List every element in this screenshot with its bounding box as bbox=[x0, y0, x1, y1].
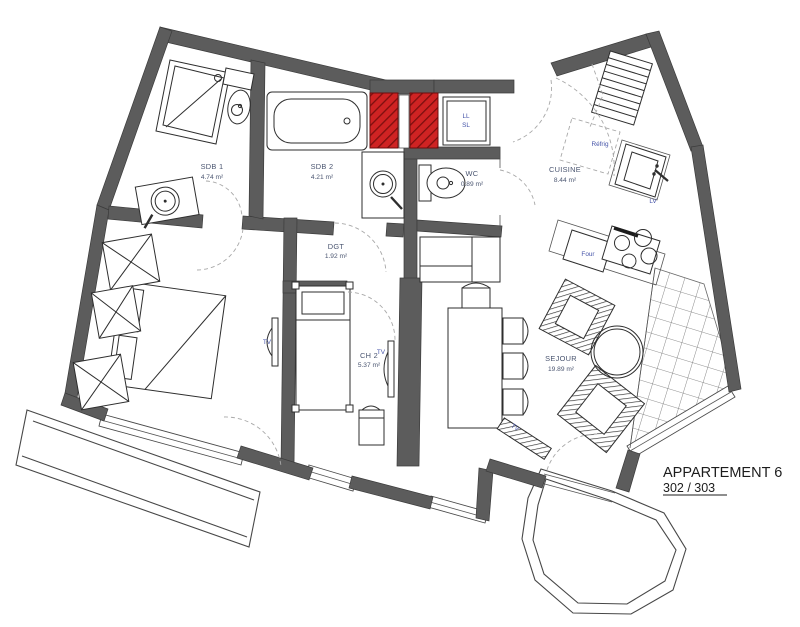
bathtub-icon bbox=[267, 92, 367, 150]
label-sejour-name: SEJOUR bbox=[545, 354, 577, 363]
washing-machine-icon bbox=[443, 97, 490, 145]
dining-chair-3 bbox=[503, 389, 528, 415]
armchair-1 bbox=[539, 279, 615, 355]
label-dgt-name: DGT bbox=[328, 242, 345, 251]
wall-bottom-1 bbox=[237, 446, 313, 480]
door-arc-ch2 bbox=[348, 292, 395, 340]
stove-icon bbox=[602, 226, 660, 274]
label-oven: Four bbox=[581, 251, 595, 258]
tv-sejour-cabinet bbox=[497, 418, 551, 459]
door-arc-wc bbox=[500, 170, 535, 205]
wardrobe-1 bbox=[102, 234, 160, 290]
dining-chair-1 bbox=[503, 318, 528, 344]
label-dgt-area: 1.92 m² bbox=[325, 253, 348, 260]
floorplan-canvas: SDB 1 4.74 m² SDB 2 4.21 m² WC 0.89 m² C… bbox=[0, 0, 800, 627]
duct-1 bbox=[370, 93, 398, 148]
ducts bbox=[370, 93, 438, 148]
label-cuisine-name: CUISINE bbox=[549, 165, 581, 174]
toilet-sdb1-icon bbox=[223, 68, 254, 126]
desk-ch2 bbox=[359, 406, 384, 445]
label-tv-ch1: TV bbox=[263, 339, 272, 346]
furniture bbox=[73, 234, 644, 459]
label-sejour-area: 19.89 m² bbox=[548, 366, 575, 373]
wall-bottom-step bbox=[476, 468, 493, 521]
wall-bottom-4 bbox=[616, 450, 640, 492]
label-wc-name: WC bbox=[466, 169, 479, 178]
window-ch1 bbox=[99, 414, 244, 465]
label-washer-ll: LL bbox=[462, 113, 470, 120]
wall-top-mid bbox=[370, 80, 434, 94]
label-sdb2-name: SDB 2 bbox=[311, 162, 334, 171]
door-arc-entry-1 bbox=[513, 80, 552, 142]
label-sdb1-area: 4.74 m² bbox=[201, 174, 224, 181]
wall-wc-bottom bbox=[417, 220, 502, 237]
wall-right-upper bbox=[646, 31, 703, 151]
label-dishwasher: LV bbox=[649, 198, 657, 205]
wall-entry bbox=[434, 80, 514, 93]
single-bed bbox=[292, 282, 353, 412]
wall-bottom-3 bbox=[486, 459, 546, 488]
coffee-table bbox=[591, 326, 643, 378]
label-washer-sl: SL bbox=[462, 122, 470, 129]
wall-ch2-sejour bbox=[397, 278, 422, 466]
wall-dgt-right bbox=[386, 223, 404, 237]
wardrobe-2 bbox=[91, 286, 140, 339]
dining-table bbox=[448, 308, 502, 428]
label-ch2-name: CH 2 bbox=[360, 351, 378, 360]
label-ch2-area: 5.37 m² bbox=[358, 362, 381, 369]
wall-bottom-2 bbox=[349, 476, 433, 509]
door-arc-ch1 bbox=[196, 229, 243, 270]
unit-numbers: 302 / 303 bbox=[663, 481, 715, 495]
title-block: APPARTEMENT 6 302 / 303 bbox=[663, 465, 782, 495]
label-cuisine-area: 8.44 m² bbox=[554, 177, 577, 184]
door-arc-sdb1 bbox=[206, 181, 242, 217]
wc-cabinet bbox=[420, 237, 500, 282]
wall-wc-top bbox=[404, 147, 500, 159]
wardrobe-3 bbox=[73, 354, 129, 410]
dining-chair-2 bbox=[503, 353, 528, 379]
label-tv-ch2: TV bbox=[377, 349, 386, 356]
tv-ch2-icon bbox=[384, 341, 394, 397]
window-ch2 bbox=[306, 465, 356, 491]
label-wc-area: 0.89 m² bbox=[461, 181, 484, 188]
duct-gap-channel bbox=[399, 95, 409, 148]
dining-chair-top bbox=[462, 283, 490, 308]
duct-2 bbox=[410, 93, 438, 148]
shower-icon bbox=[156, 60, 230, 144]
wall-ch1-ch2 bbox=[281, 218, 297, 466]
wall-wc-left bbox=[404, 148, 417, 282]
label-sdb2-area: 4.21 m² bbox=[311, 174, 334, 181]
washbasin-sdb2-icon bbox=[362, 152, 404, 218]
label-fridge: Réfrig bbox=[591, 141, 608, 148]
label-sdb1-name: SDB 1 bbox=[201, 162, 224, 171]
balcony-octagon bbox=[522, 469, 686, 614]
plan-title: APPARTEMENT 6 bbox=[663, 465, 782, 481]
floorplan-page: SDB 1 4.74 m² SDB 2 4.21 m² WC 0.89 m² C… bbox=[0, 0, 800, 627]
toilet-wc-icon bbox=[419, 165, 465, 201]
